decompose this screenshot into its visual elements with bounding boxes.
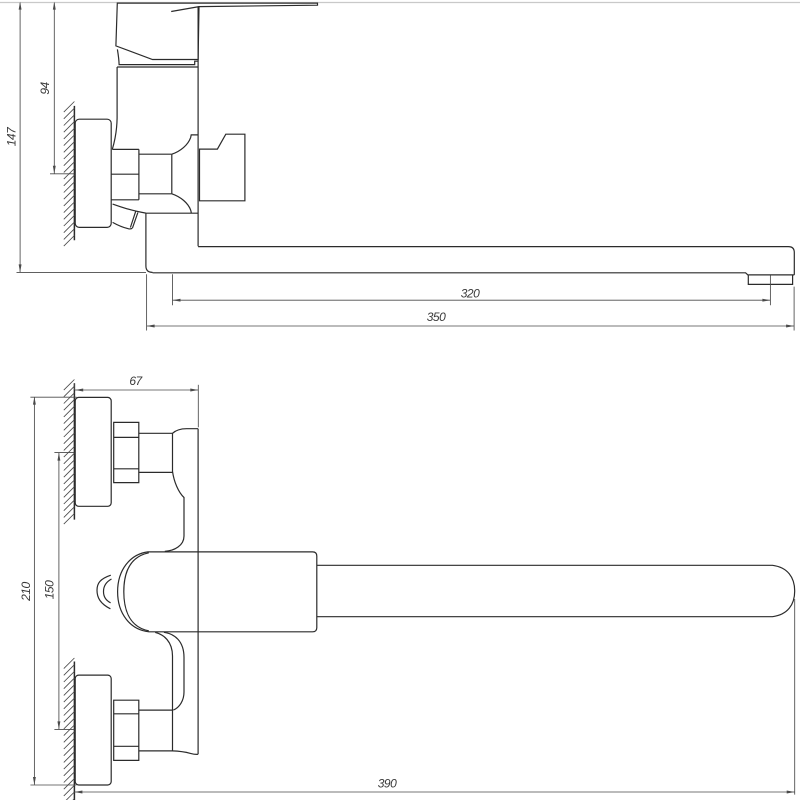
svg-text:320: 320 (461, 287, 480, 301)
svg-text:147: 147 (4, 126, 18, 146)
svg-text:210: 210 (19, 582, 33, 602)
svg-text:150: 150 (42, 580, 56, 599)
svg-text:94: 94 (38, 82, 52, 95)
svg-text:67: 67 (129, 374, 143, 388)
svg-text:350: 350 (427, 310, 446, 324)
svg-text:390: 390 (378, 777, 397, 791)
